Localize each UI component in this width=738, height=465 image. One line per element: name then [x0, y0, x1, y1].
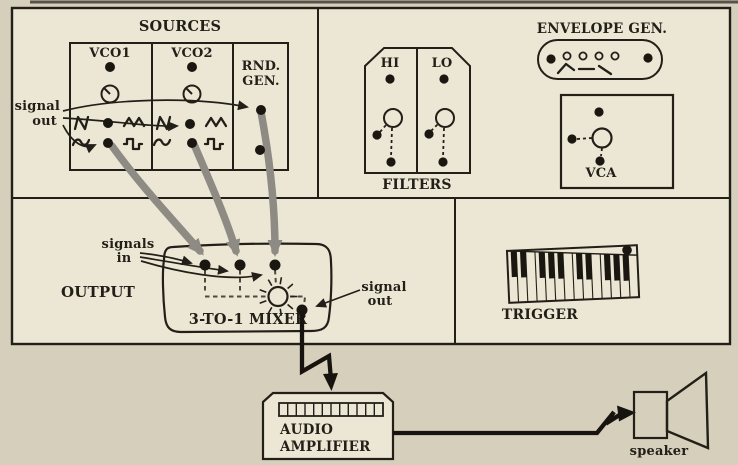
jack-dot: [270, 260, 281, 271]
jack-dot: [187, 62, 197, 72]
jack-dot: [103, 118, 113, 128]
jack-dot: [546, 54, 555, 63]
filter-lo-label: LO: [432, 56, 453, 71]
amplifier-label-1: AUDIO: [279, 422, 333, 438]
jack-dot: [187, 138, 197, 148]
mixer-signal-out-label-1: signal: [361, 280, 406, 295]
jack-dot: [439, 74, 448, 83]
jack-dot: [103, 138, 113, 148]
filters-title: FILTERS: [382, 177, 451, 193]
rnd-gen-label-2: GEN.: [242, 74, 279, 89]
rnd-gen-label-1: RND.: [242, 59, 281, 74]
jack-dot: [185, 119, 195, 129]
vco1-label: VCO1: [88, 46, 131, 61]
output-title: OUTPUT: [61, 283, 136, 301]
jack-dot: [424, 129, 433, 138]
signals-in-label-2: in: [117, 251, 132, 266]
sources-signal-out-label-1: signal: [15, 99, 60, 114]
signals-in-label-1: signals: [102, 237, 155, 252]
sources-signal-out-label-2: out: [32, 114, 57, 129]
mixer-signal-out-label-2: out: [368, 294, 393, 309]
envelope-gen-title: ENVELOPE GEN.: [537, 21, 667, 37]
vca-label: VCA: [584, 166, 617, 181]
synth-patch-diagram: SOURCES VCO1 VCO2 RND. GEN. signal: [0, 0, 738, 465]
jack-dot: [372, 130, 381, 139]
jack-dot: [105, 62, 115, 72]
jack-dot: [595, 156, 604, 165]
jack-dot: [643, 53, 652, 62]
jack-dot: [385, 74, 394, 83]
jack-dot: [567, 134, 576, 143]
jack-dot: [594, 107, 603, 116]
filter-hi-label: HI: [381, 56, 400, 71]
dashed-link: [577, 138, 592, 139]
amplifier-label-2: AMPLIFIER: [279, 439, 371, 455]
jack-dot: [255, 145, 265, 155]
diagram-canvas: SOURCES VCO1 VCO2 RND. GEN. signal: [0, 0, 738, 465]
jack-dot: [438, 157, 447, 166]
trigger-title: TRIGGER: [502, 307, 578, 323]
jack-dot: [256, 105, 266, 115]
mixer-label: 3-TO-1 MIXER: [189, 311, 308, 328]
jack-dot: [386, 157, 395, 166]
speaker-label: speaker: [630, 444, 689, 459]
jack-dot: [235, 260, 246, 271]
jack-dot: [200, 260, 211, 271]
vco2-label: VCO2: [170, 46, 213, 61]
sources-title: SOURCES: [139, 18, 221, 35]
